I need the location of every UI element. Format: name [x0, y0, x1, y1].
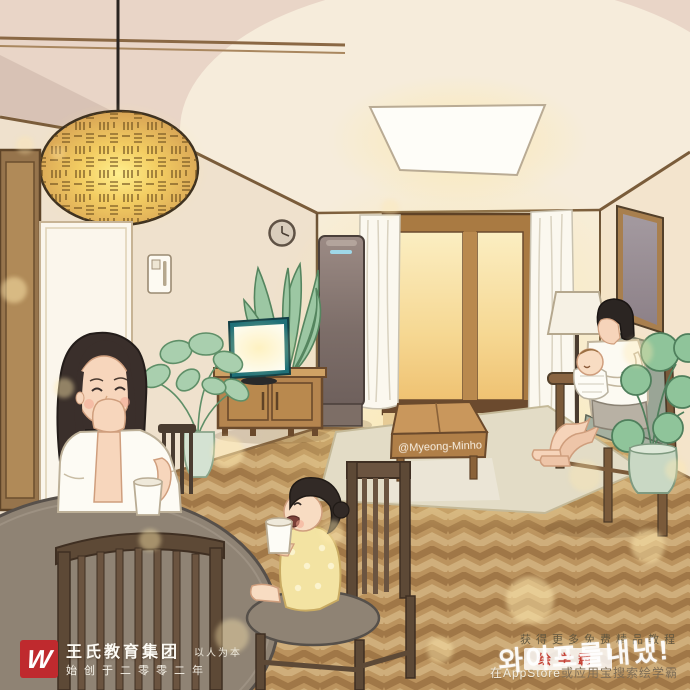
living-room-scene: [0, 0, 690, 690]
brand-logo-letter: W: [25, 646, 52, 672]
light-switch: [148, 255, 171, 293]
cup-child: [266, 518, 292, 553]
wall-clock: [270, 221, 295, 246]
brand-logo: W: [20, 640, 58, 678]
brand-name: 王氏教育集团: [66, 638, 180, 662]
brand-slogan: 以人为本: [194, 644, 242, 659]
tv: [219, 318, 299, 385]
illustration-canvas: @Myeong-Minho W 王氏教育集团 以人为本 始创于二零零二年 获得更…: [0, 0, 690, 690]
left-wardrobe: [0, 150, 40, 510]
brand-established: 始创于二零零二年: [66, 662, 210, 678]
cup-table: [134, 478, 162, 515]
ceiling-light: [328, 75, 588, 205]
